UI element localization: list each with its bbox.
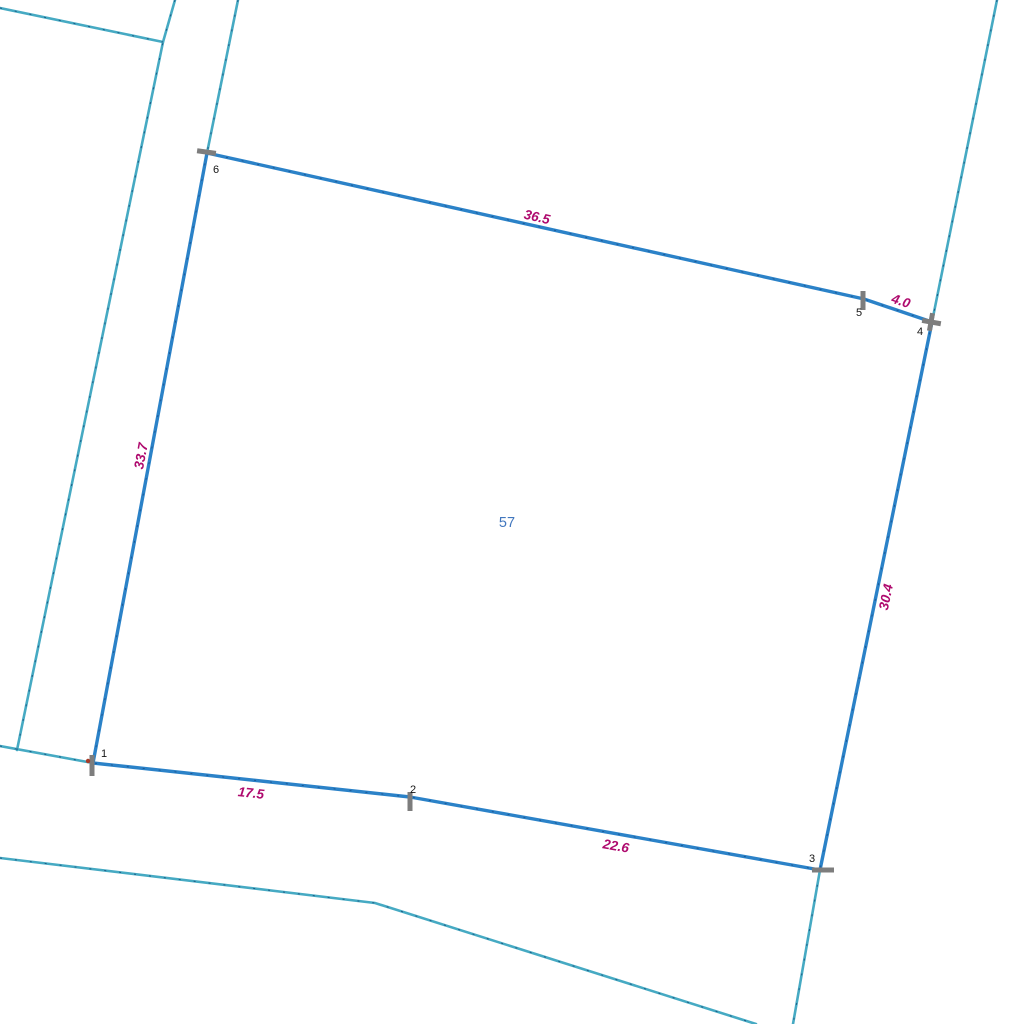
neighbor-line-above-vertex-4[interactable]: [932, 0, 997, 322]
cadastral-map: 36.5 4.0 30.4 22.6 17.5 33.7 1 2 3 4 5 6…: [0, 0, 1024, 1024]
vertex-number-2: 2: [410, 784, 416, 796]
vertex-number-6: 6: [213, 164, 219, 176]
neighbor-line-dash-overlay: [0, 0, 997, 1024]
vertex-number-3: 3: [809, 853, 815, 865]
neighbor-line-bottom[interactable]: [0, 858, 756, 1024]
neighbor-line-bottom-left[interactable]: [0, 746, 93, 763]
parcel-57-boundary[interactable]: [93, 153, 932, 870]
neighbor-line-top-left[interactable]: [0, 8, 163, 42]
parcel-number-label: 57: [499, 515, 515, 531]
map-canvas[interactable]: 36.5 4.0 30.4 22.6 17.5 33.7 1 2 3 4 5 6…: [0, 0, 1024, 1024]
edge-length-label-3-2: 22.6: [601, 836, 631, 856]
vertex-number-5: 5: [856, 307, 862, 319]
boundary-point-dot: [86, 759, 90, 763]
neighbor-line-above-vertex-6[interactable]: [207, 0, 238, 153]
vertex-marker-4[interactable]: [921, 312, 943, 333]
vertex-number-4: 4: [917, 326, 923, 338]
neighbor-line-left[interactable]: [17, 0, 175, 750]
edge-length-label-2-1: 17.5: [237, 784, 265, 802]
vertex-markers: [86, 151, 943, 870]
vertex-marker-6[interactable]: [197, 151, 216, 154]
neighbor-parcel-lines: [0, 0, 997, 1024]
neighbor-line-below-vertex-3[interactable]: [793, 870, 820, 1024]
parcel-boundary-dash-overlay: [93, 153, 932, 870]
dimension-labels: 36.5 4.0 30.4 22.6 17.5 33.7: [131, 207, 912, 856]
vertex-number-1: 1: [101, 748, 107, 760]
